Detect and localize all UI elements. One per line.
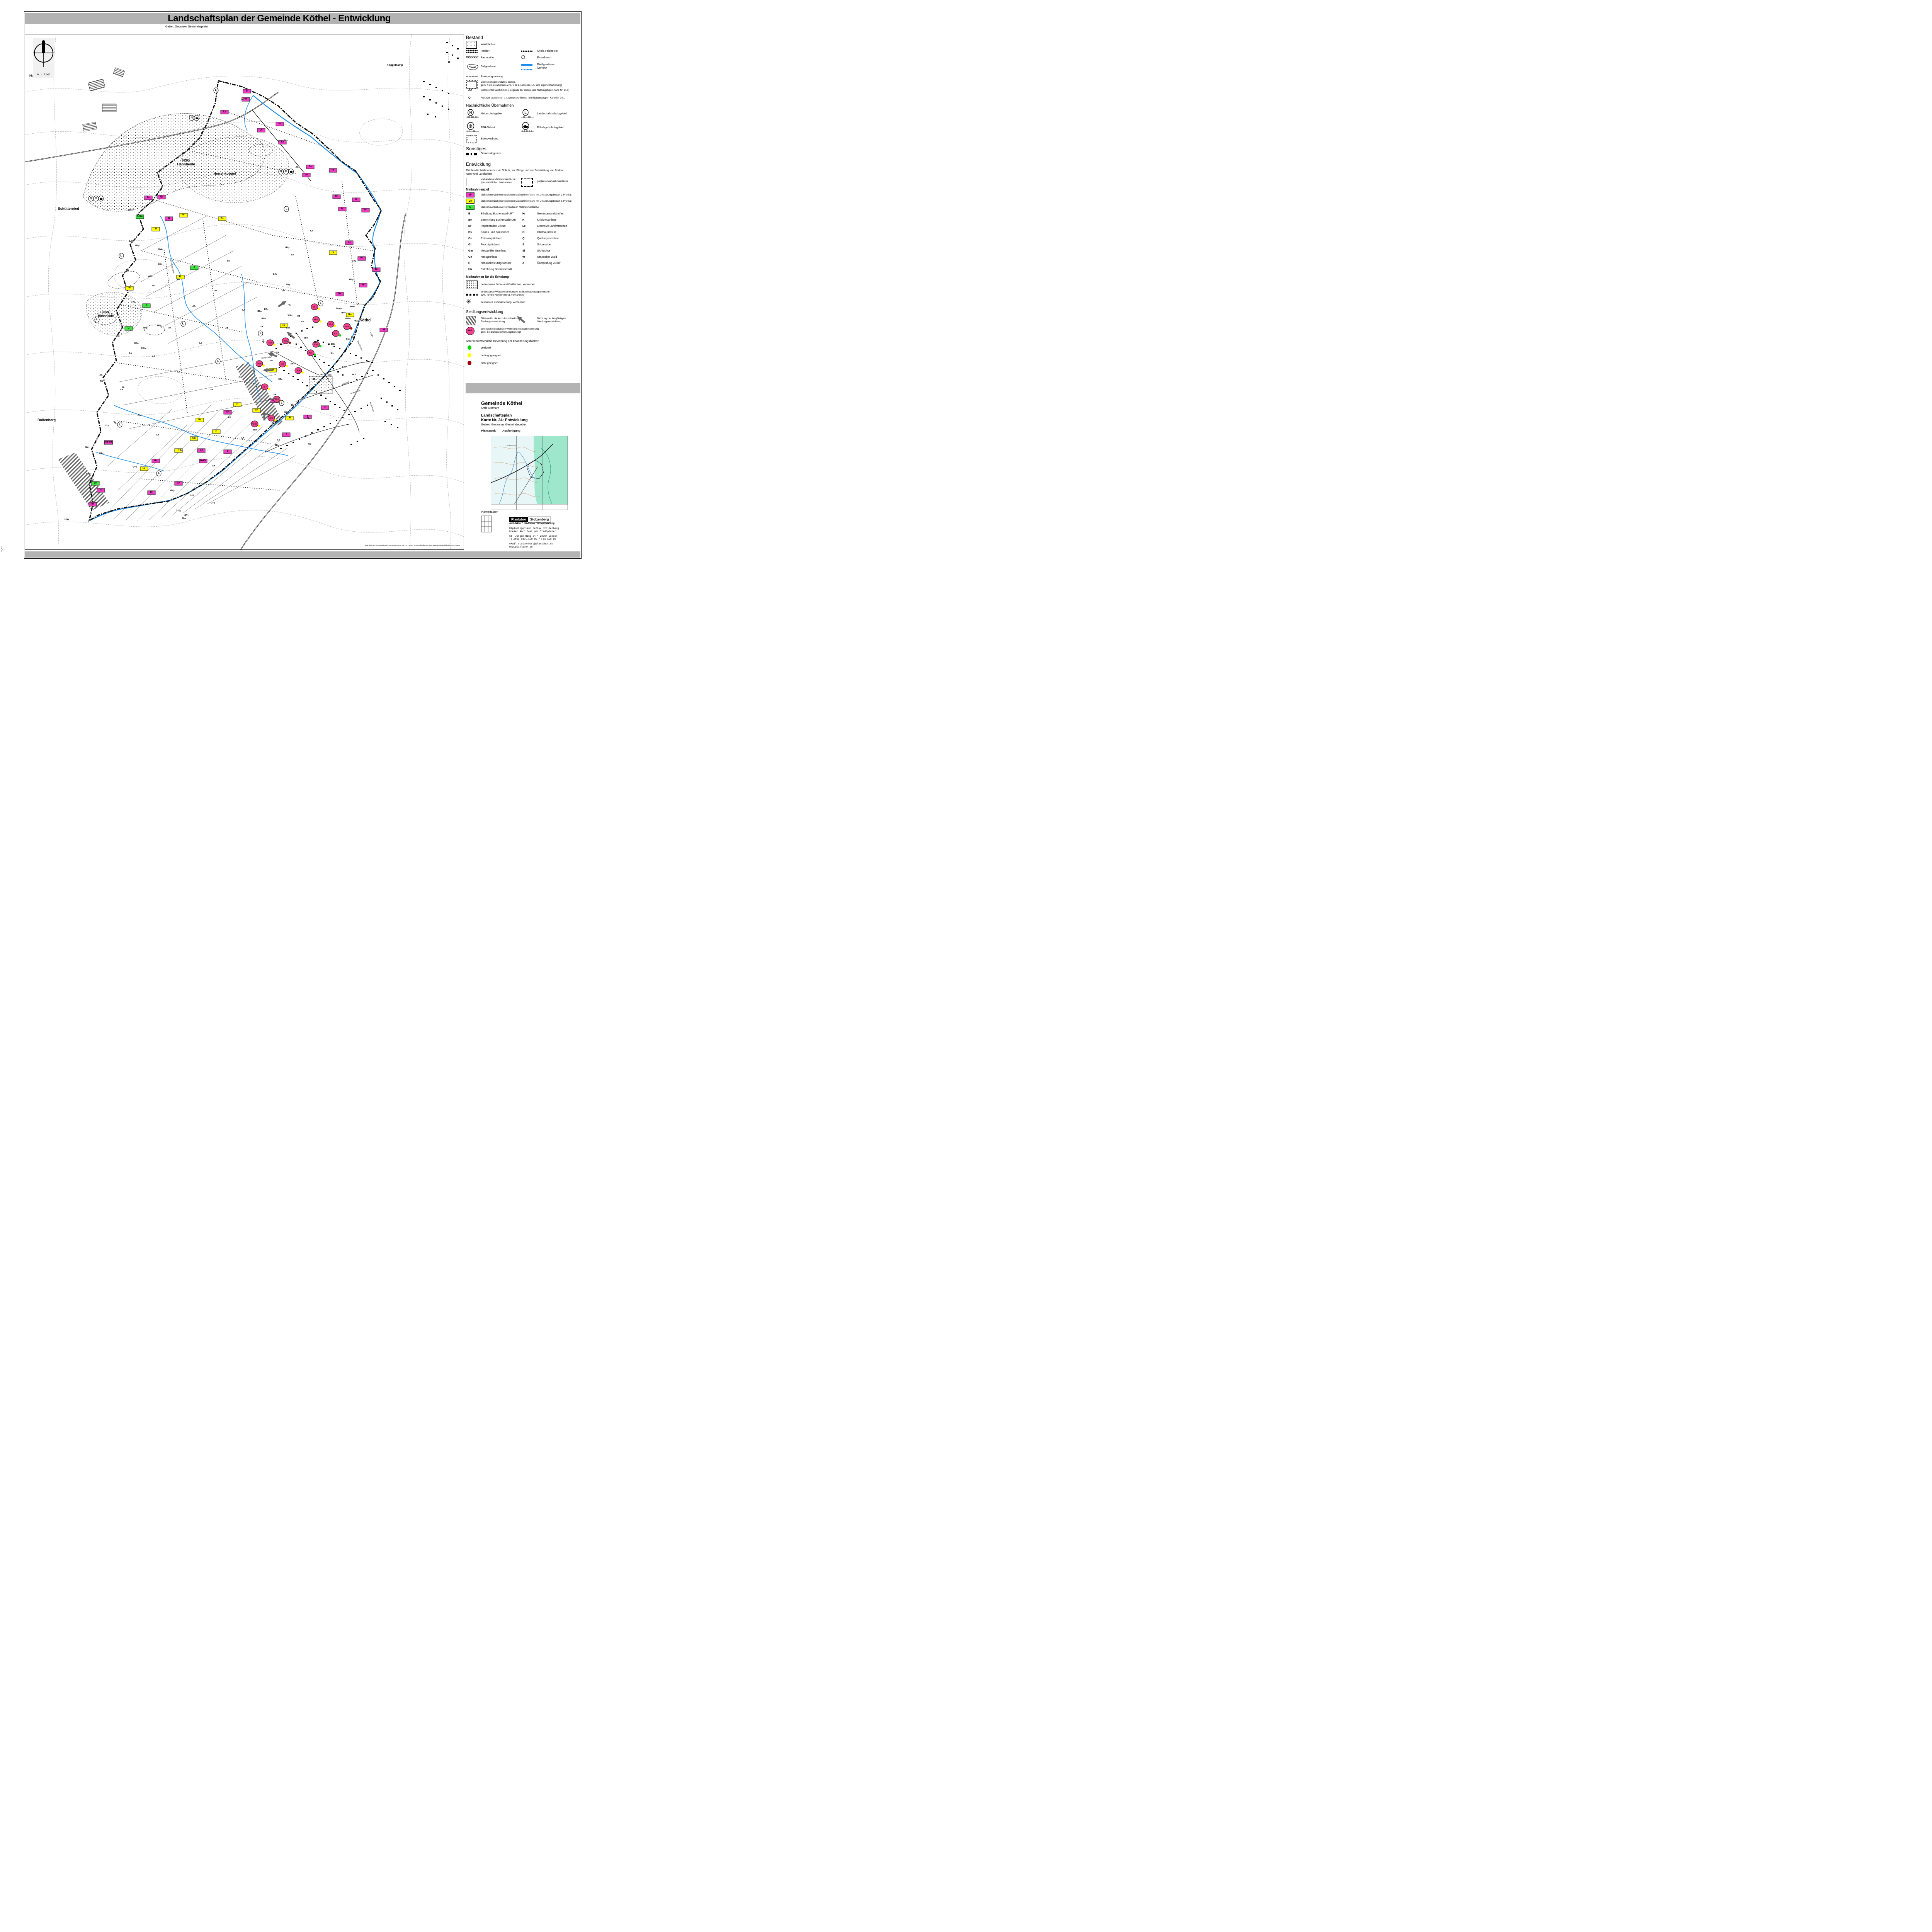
biotope-code: HGy: [65, 519, 69, 521]
place-label: Köthel: [359, 318, 371, 322]
biotope-code: FX: [256, 386, 259, 388]
measure-abbr: Hb: [468, 268, 472, 271]
biotope-code: GYy: [105, 425, 109, 427]
landschaftsschutz-letter: L: [216, 359, 221, 364]
fliessgewaesser-label: Fließgewässer /verrohrt: [537, 63, 555, 70]
ffh-icon: ❋: [283, 168, 289, 174]
biotope-code: FK: [288, 304, 291, 306]
rating-dot: [268, 388, 270, 390]
measure-abbr: H: [468, 262, 470, 265]
ziel-le-chip: Le: [466, 199, 474, 204]
expansion-site-ae-9: AE-9: [267, 415, 275, 422]
measure-chip: S: [190, 265, 199, 270]
legend-heading-bestand: Bestand: [466, 35, 483, 40]
measure-term: Sukzession: [537, 243, 551, 247]
legend-heading-siedlung: Siedlungsentwicklung: [466, 310, 503, 314]
measure-chip: W: [380, 328, 388, 332]
biotope-code: HGy: [264, 308, 269, 311]
biotope-code: SBe: [342, 366, 347, 368]
development-arrow: [277, 299, 288, 309]
margin-note: LP_Ausf: [1, 546, 3, 552]
ffh-gebiet-label: FFH-Gebiet: [481, 126, 495, 130]
legend-heading-nachrichtlich: Nachrichtliche Übernahmen: [466, 104, 514, 108]
biotope-code: FK: [274, 394, 276, 396]
biotope-code: AA: [212, 465, 215, 467]
biotope-code: FG: [100, 380, 103, 383]
biotope-code: GYf: [190, 495, 194, 497]
landschaftsschutzgebiet-label: Landschaftsschutzgebiet: [537, 112, 567, 116]
measure-term: Erhaltung Buchenwald-LRT: [481, 213, 514, 216]
biotope-code: AA: [242, 309, 245, 311]
measure-chip: Z: [282, 432, 291, 437]
measure-chip: Le: [221, 110, 229, 114]
gruenflaechen-icon: [466, 281, 478, 289]
titleblock-plan: Landschaftsplan: [481, 413, 512, 418]
landschaftsschutz-letter: L: [156, 470, 162, 476]
fliessgewaesser-icon: [521, 64, 532, 66]
legend-heading-sonstiges: Sonstiges: [466, 146, 486, 151]
qr-abbr: Qr: [468, 97, 471, 99]
biotope-code: 4xQr: [129, 240, 134, 243]
planlabor-logo: PlanlaborStolzenberg: [509, 515, 551, 522]
gemeindegrenze-icon: [466, 153, 479, 155]
biotope-code: FX: [277, 439, 280, 441]
measure-term: Feuchtgrünland: [481, 243, 500, 247]
measure-chip: Hr: [276, 122, 284, 126]
wegeverbindung-label: bedeutende Wegeverbindungen zu den Nachb…: [481, 291, 550, 297]
biotope-code: Qr: [122, 386, 124, 389]
street-label: In de Grund: [350, 389, 361, 395]
siedlungsflaechen-icon: [466, 316, 476, 325]
measure-chip: W: [179, 213, 187, 217]
biotope-code: AA: [138, 414, 141, 417]
knick-icon: [521, 50, 532, 52]
svg-text:Mühlenrade: Mühlenrade: [506, 445, 516, 447]
biotope-code: AA: [291, 254, 294, 256]
biotopabgrenzung-icon: [466, 77, 478, 77]
gemeindegrenze-label: Gemeindegrenze: [481, 152, 502, 156]
measure-abbr: Ge: [468, 237, 472, 240]
ziel-s-label: Maßnahmenziel einer vorhandenen Maßnahme…: [481, 206, 539, 209]
biotope-code: 44.7: [352, 374, 356, 376]
street-label: Billenhof: [342, 381, 349, 386]
compass-box: M. 1 : 5.000: [33, 38, 54, 78]
title-bar: Landschaftsplan der Gemeinde Köthel - En…: [25, 13, 580, 24]
biotope-code: FBt: [261, 339, 264, 343]
measure-chip: Gn: [152, 459, 160, 463]
biotope-code: GYy: [133, 466, 137, 468]
baumreihe-label: Baumreihe: [481, 56, 494, 60]
measure-chip: Bs: [218, 217, 226, 221]
biotope-code: AA: [117, 335, 120, 337]
ffh-gebiet-icon: ❋: [466, 122, 479, 133]
biotope-code: FBt: [112, 421, 117, 425]
measure-chip: H: [233, 403, 241, 407]
landschaftsschutz-letter: L: [95, 317, 100, 323]
wegeverbindung-icon: [466, 294, 478, 296]
biotope-code: WAn: [287, 315, 292, 317]
biotope-code: FK: [238, 376, 241, 379]
map-overlays: BrHrLeHrLeLeGeHrLeHrHrWWBeQrBWBsWGf/GnGe…: [25, 34, 464, 549]
biotope-code: GYy: [158, 263, 162, 265]
measure-term: Nassgrünland: [481, 256, 497, 259]
rating-dot: [274, 419, 277, 421]
rating-dot: [258, 425, 260, 427]
biotope-code: AA: [129, 352, 132, 355]
geschuetztes-biotop-label: Gesetzlich geschütztes Biotop, gem. § 30…: [481, 81, 562, 87]
place-label: NSG Hahnheide: [177, 158, 195, 166]
ziel-w-chip: W: [466, 192, 474, 197]
measure-chip: Hr: [352, 197, 360, 202]
legend-heading-bewertung: naturschutzfachliche Bewertung der Erwei…: [466, 339, 539, 343]
measure-chip: B: [165, 217, 173, 221]
biotope-code: HRv: [341, 312, 345, 314]
author-web: www.planlabor.de: [509, 546, 532, 548]
map-credit: verändert nach ©GeoBasis-DE/LVermGeo SH/…: [191, 544, 460, 546]
landschaftsschutz-letter: L: [180, 321, 185, 327]
measure-chip: Si: [286, 416, 294, 420]
legend-separator-bar: [466, 383, 580, 393]
measure-chip: Z: [224, 449, 232, 454]
expansion-site-ie-1: IE-1: [332, 330, 339, 337]
biotope-code: AA: [180, 449, 183, 452]
expansion-site-ie-6: IE-6: [295, 367, 302, 374]
rating-dot: [339, 334, 341, 337]
redder-icon: [466, 49, 478, 53]
place-label: Koppelkamp: [387, 64, 403, 66]
measure-term: Quellregeneration: [537, 237, 559, 241]
expansion-site-ae-7: AE-7: [261, 383, 268, 390]
einzelbaum-icon: [521, 55, 526, 60]
scale-label: M. 1 : 5.000: [33, 73, 54, 76]
biotope-code: FK: [177, 279, 180, 281]
measure-abbr: O: [522, 231, 524, 234]
titleblock-karte: Karte Nr. 24: Entwicklung: [481, 418, 528, 422]
biotope-code: SBe: [299, 399, 304, 401]
titleblock-gemeinde: Gemeinde Köthel: [481, 400, 522, 406]
biotope-code: WAe: [128, 209, 133, 211]
landschaftsschutz-letter: L: [284, 206, 289, 212]
expansion-site-ae-2: AE-2: [312, 316, 320, 323]
measure-chip: W: [152, 227, 160, 231]
map-area[interactable]: BrHrLeHrLeLeGeHrLeHrHrWWBeQrBWBsWGf/GnGe…: [25, 34, 464, 550]
naturschutz-letter: N: [88, 196, 94, 202]
expansion-site-ae-5: AE-5: [267, 340, 274, 346]
biotope-code: AA: [282, 290, 286, 292]
measure-chip: W: [357, 256, 366, 260]
measure-chip: G: [124, 327, 133, 331]
biotope-code: HEy: [99, 452, 104, 455]
expansion-site-ae-3: AE-3: [327, 321, 335, 328]
biotope-code: SDp: [284, 411, 289, 413]
biotope-code: AA: [225, 327, 228, 329]
measure-chip: Le: [91, 481, 99, 486]
biotope-code: FLw: [182, 517, 186, 520]
biotope-code: FX: [276, 352, 279, 354]
measure-term: Entrohrung Bachabschnitt: [481, 268, 512, 272]
biotope-code: GYy: [85, 446, 90, 449]
biotope-code: AA: [177, 371, 180, 373]
qr-label: Artkürzel (ausführlich s. Legende zur Bi…: [481, 97, 565, 100]
geplante-flaeche-label: geplante Maßnahmenfläche: [537, 180, 568, 183]
geschuetztes-biotop-icon: [466, 80, 478, 89]
plan-sheet: Landschaftsplan der Gemeinde Köthel - En…: [0, 0, 595, 576]
vorhandene-flaeche-label: vorhandene Maßnahmenfläche (nachrichtlic…: [481, 178, 515, 184]
place-label: Bullenberg: [37, 418, 56, 422]
expansion-site-ie-3: IE-3: [307, 349, 314, 356]
baumreihe-icon: [466, 56, 478, 59]
rating-dot: [314, 354, 316, 356]
measure-abbr: Z: [522, 262, 524, 265]
measure-chip: W: [126, 286, 134, 291]
biotope-code: GYy: [170, 490, 175, 492]
measure-chip: Gm: [346, 313, 354, 317]
biotope-code: GYy: [131, 301, 135, 303]
measure-term: Mesophiles Grünland: [481, 250, 506, 253]
biotope-code: AA: [199, 342, 202, 345]
biotope-code: HBw: [257, 310, 262, 313]
page-title: Landschaftsplan der Gemeinde Köthel - En…: [168, 13, 391, 24]
biotope-code: FX: [260, 326, 263, 328]
biotope-code: SBe: [278, 378, 282, 381]
planstand-label: Planstand:: [481, 429, 496, 432]
measure-chip: Gn: [253, 408, 261, 413]
biotope-code: SVs: [327, 374, 331, 376]
biotope-code: FS: [298, 315, 300, 318]
measure-term: Obstbaumwiese: [537, 231, 556, 235]
author-address: St. Jürgen-Ring 34 * 23564 Lübeck: [509, 535, 558, 537]
biotope-code: SBe: [313, 378, 317, 381]
logo-planlabor: Planlabor: [509, 517, 528, 522]
measure-abbr: S: [522, 243, 524, 246]
landschaftsschutz-letter: L: [213, 88, 218, 94]
potenzielle-erweiterung-label: potenzielle Siedlungserweiterung mit Num…: [481, 328, 539, 334]
rating-dot: [350, 327, 352, 330]
expansion-site-ae-4: AE-4: [344, 323, 351, 330]
measure-chip: Le: [302, 173, 310, 177]
redder-label: Redder: [481, 50, 490, 53]
biotope-code: SBe: [304, 337, 308, 339]
aa-abbr: AA: [468, 89, 472, 92]
rating-dot: [273, 344, 276, 346]
biotope-code: GYy: [285, 247, 289, 249]
measure-chip: Le: [140, 466, 148, 471]
biotope-code: GYy: [211, 502, 215, 504]
biotope-code: AA: [120, 389, 123, 391]
biotope-code: Ah: [287, 341, 289, 344]
biotopverbund-label: Biotopverbund: [481, 138, 498, 141]
biotope-code: SVu: [252, 369, 256, 374]
measure-chip: Ge: [306, 165, 314, 169]
biotope-code: GYy: [135, 245, 139, 247]
rating-dot: [334, 325, 336, 327]
measure-abbr: Si: [522, 250, 525, 252]
author-phone: Telefon 0451-550 95 * Fax 550 96: [509, 538, 556, 541]
street-label: Bergstraße: [262, 356, 271, 360]
measure-term: naturnaher Wald: [537, 256, 557, 259]
biotope-code: WMe: [158, 248, 163, 251]
street-label: Herrenkoppelbek: [169, 259, 175, 274]
rating-dot: [286, 365, 288, 367]
measure-chip: Be: [144, 196, 152, 200]
page-subtitle: Gebiet: Gesamtes Gemeindegebiet: [165, 26, 208, 28]
biotope-code: SBe: [275, 444, 279, 447]
logo-stolzenberg: Stolzenberg: [528, 517, 551, 522]
measure-term: Sichtachse: [537, 250, 550, 253]
titleblock-kreis: Kreis Stormarn: [481, 407, 499, 410]
measure-chip: W: [338, 207, 346, 211]
biotope-code: RHg: [86, 473, 90, 475]
gruenflaechen-label: bedeutsame Grün- und Freiflächen, vorhan…: [481, 283, 535, 286]
geeignet-dot: [468, 345, 471, 350]
naturschutz-letter: N: [278, 168, 283, 174]
measure-chip: Gn: [175, 481, 183, 486]
biotope-code: AA: [310, 230, 313, 232]
naturschutzgebiet-label: Naturschutzgebiet: [481, 112, 502, 116]
biotope-code: AA: [265, 451, 268, 453]
biotope-code: FX: [228, 417, 231, 419]
measure-chip: Hr: [332, 194, 340, 199]
eu-vogelschutz-icon: [521, 122, 534, 133]
landschaftsschutz-letter: L: [117, 422, 122, 428]
measure-chip: Hr: [321, 406, 329, 410]
expansion-site-ae-6: AE-6: [256, 360, 263, 367]
biotope-code: AA: [156, 434, 159, 436]
planlabor-grid-icon: [481, 515, 492, 532]
measure-term: Naturnahes Stillgewässer: [481, 262, 511, 265]
measure-chip: Le: [257, 128, 265, 132]
aa-label: Biotopkürzel (ausführlich s. Legende zur…: [481, 89, 569, 92]
biotope-code: FK: [211, 389, 213, 391]
biotope-code: AA: [241, 437, 244, 439]
street-label: Twerblöcken: [356, 340, 363, 351]
geplante-flaeche-icon: [521, 178, 533, 187]
planverfasser-label: Planverfasser:: [481, 511, 498, 514]
measure-term: Regeneration Billetal: [481, 225, 506, 228]
biotope-code: SEk: [320, 392, 323, 394]
measure-chip: Gn: [224, 410, 232, 415]
waldflaechen-label: Waldflächen: [481, 43, 495, 47]
biotope-code: WMs: [350, 306, 355, 308]
logo-subline: Architektur * Städtebau * Umweltplanung: [509, 522, 554, 525]
siedlungsflaechen-label: Flächen für die kurz- bis mittelfristige…: [481, 317, 522, 323]
measure-chip: Qr: [157, 195, 165, 199]
measure-chip: Ge/Gf: [199, 459, 207, 463]
biotope-code: Sly: [314, 341, 317, 344]
biotope-code: Sly: [351, 336, 354, 338]
measure-term: Extensive Landwirtschaft: [537, 225, 567, 228]
stillgewaesser-label: Stillgewässer: [481, 65, 497, 69]
svg-text:L: L: [524, 111, 527, 115]
ziel-w-label: Maßnahmenziel einer geplanten Maßnahmenf…: [481, 194, 571, 197]
biotope-code: AA: [192, 305, 196, 308]
biotope-code: SPi: [270, 360, 273, 362]
biotope-code: AA: [168, 327, 172, 329]
biotope-code: GYy: [184, 514, 189, 517]
biotope-code: GYy: [352, 260, 356, 262]
biotope-code: AA: [214, 290, 218, 292]
biotope-code: GMm: [345, 318, 350, 320]
measure-abbr: Bs: [468, 231, 472, 234]
eu-vogelschutz-label: EU-Vogelschutzgebiet: [537, 126, 564, 130]
verrohrt-icon: [521, 69, 532, 70]
biotope-code: GYy: [157, 325, 162, 327]
naturschutz-letter: N: [189, 115, 194, 121]
blickbeziehung-label: besondere Blickbeziehung, vorhanden: [481, 301, 526, 304]
biotope-code: GYy: [349, 279, 354, 281]
north-arrow-icon: [33, 38, 54, 69]
ziel-le-label: Maßnahmenziel einer geplanten Maßnahmenf…: [481, 200, 571, 203]
biotope-code: AA: [152, 355, 155, 358]
measure-chip: Ge: [345, 240, 353, 245]
biotope-code: FK: [227, 260, 230, 262]
titleblock-gebiet: Gebiet: Gesamtes Gemeindegebiet: [481, 423, 527, 426]
landschaftsschutz-letter: L: [119, 253, 124, 259]
biotope-code: RHg: [143, 327, 147, 329]
knick-label: Knick, Feldhecke: [537, 50, 558, 53]
measure-term: Extensivgrünland: [481, 237, 502, 241]
measure-term: Gewässerrandstreifen: [537, 213, 563, 216]
measure-chip: Gf/Gn: [136, 214, 144, 219]
measure-chip: Hr: [329, 168, 337, 172]
biotope-code: AA: [99, 374, 102, 376]
measure-abbr: B: [468, 213, 470, 215]
biotope-code: AA: [296, 166, 299, 168]
biotope-code: Ah: [241, 98, 244, 100]
author-role: Freier Architekt und Stadtplaner: [509, 530, 556, 533]
biotope-code: GWm: [141, 347, 146, 350]
measure-chip: Hr: [329, 251, 337, 255]
rating-dot: [318, 308, 320, 310]
landschaftsschutzgebiet-icon: L: [521, 109, 534, 119]
measure-abbr: Qr: [522, 237, 526, 240]
biotope-code: AA: [151, 285, 155, 287]
nicht-geeignet-label: nicht geeignet: [481, 362, 498, 366]
biotope-code: SBe: [331, 343, 335, 345]
measure-abbr: Gn: [468, 256, 472, 259]
biotope-code: SBe: [286, 327, 291, 329]
measure-chip: S: [143, 304, 151, 308]
landschaftsschutz-letter: L: [258, 331, 263, 337]
bottom-bar: [25, 551, 580, 558]
street-label: L 220: [176, 509, 181, 513]
legend-heading-ziel: Maßnahmenziel: [466, 188, 489, 191]
measure-chip: Ge: [335, 292, 344, 296]
biotope-code: RHn: [262, 318, 266, 320]
measure-term: Binsen- und Simsenried: [481, 231, 509, 235]
measure-chip: Br: [243, 89, 251, 93]
measure-abbr: Br: [468, 225, 471, 228]
biotope-code: SBe: [291, 363, 295, 365]
einzelbaum-label: Einzelbaum: [537, 56, 551, 60]
measure-term: Überprüfung Zulauf: [537, 262, 560, 265]
planstand-value: Ausfertigung: [502, 429, 520, 432]
ziel-s-chip: S: [466, 205, 474, 210]
entwicklung-intro: Flächen für Maßnahmen zum Schutz, zur Pf…: [466, 169, 563, 176]
biotope-code: FX: [308, 443, 311, 446]
svg-text:N: N: [469, 111, 472, 115]
svg-text:❋: ❋: [469, 123, 473, 129]
author-email: eMail stolzenberg@planlabor.de: [509, 543, 553, 545]
biotope-code: Sly: [307, 417, 310, 420]
measure-chip: Hb+Hr: [104, 440, 113, 444]
place-label: Schüttenried: [58, 207, 79, 211]
measure-abbr: K: [522, 219, 524, 221]
blickbeziehung-icon: ✳: [466, 298, 471, 305]
place-label: Herrenkoppel: [213, 172, 236, 175]
biotope-code: AA: [126, 269, 129, 272]
bedingt-geeignet-label: bedingt geeignet: [481, 354, 501, 358]
